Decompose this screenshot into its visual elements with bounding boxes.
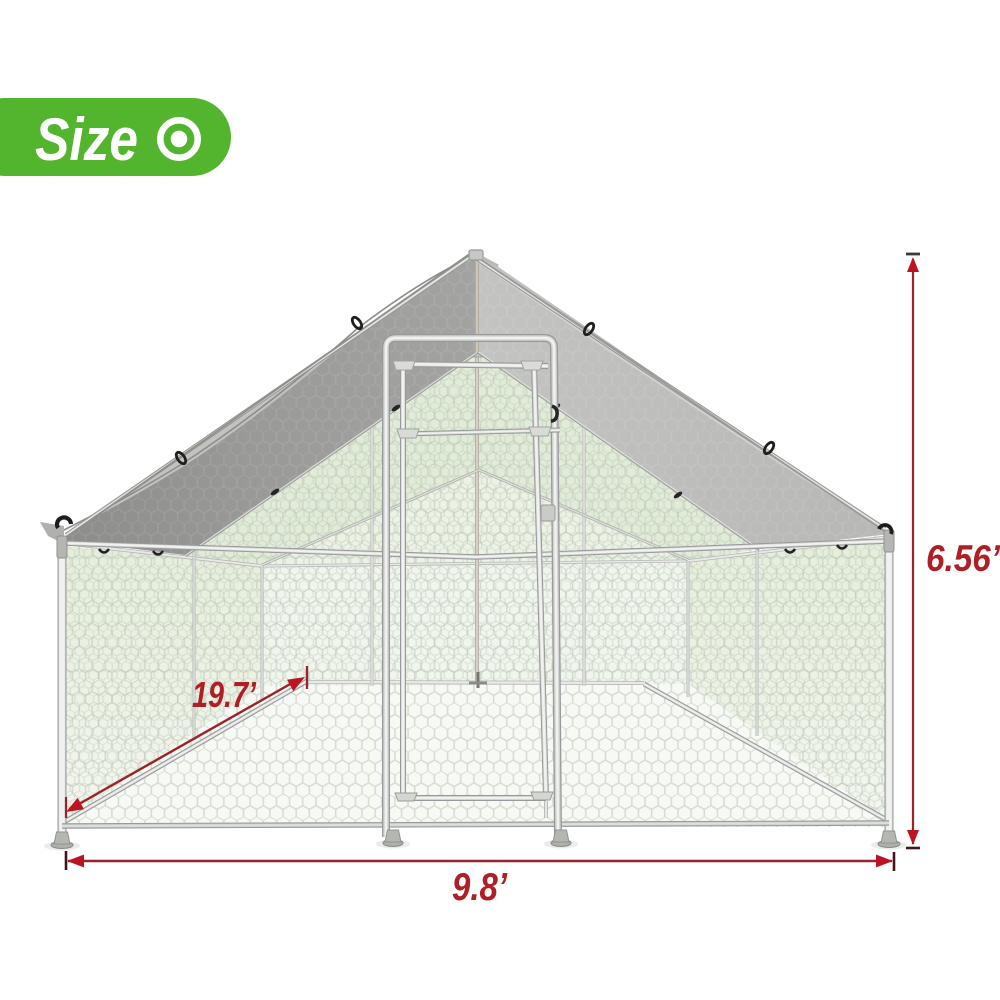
svg-text:19.7’: 19.7’ — [192, 674, 257, 715]
svg-text:Size: Size — [35, 106, 138, 173]
svg-text:6.56’: 6.56’ — [926, 538, 1000, 579]
svg-text:9.8’: 9.8’ — [452, 866, 508, 909]
